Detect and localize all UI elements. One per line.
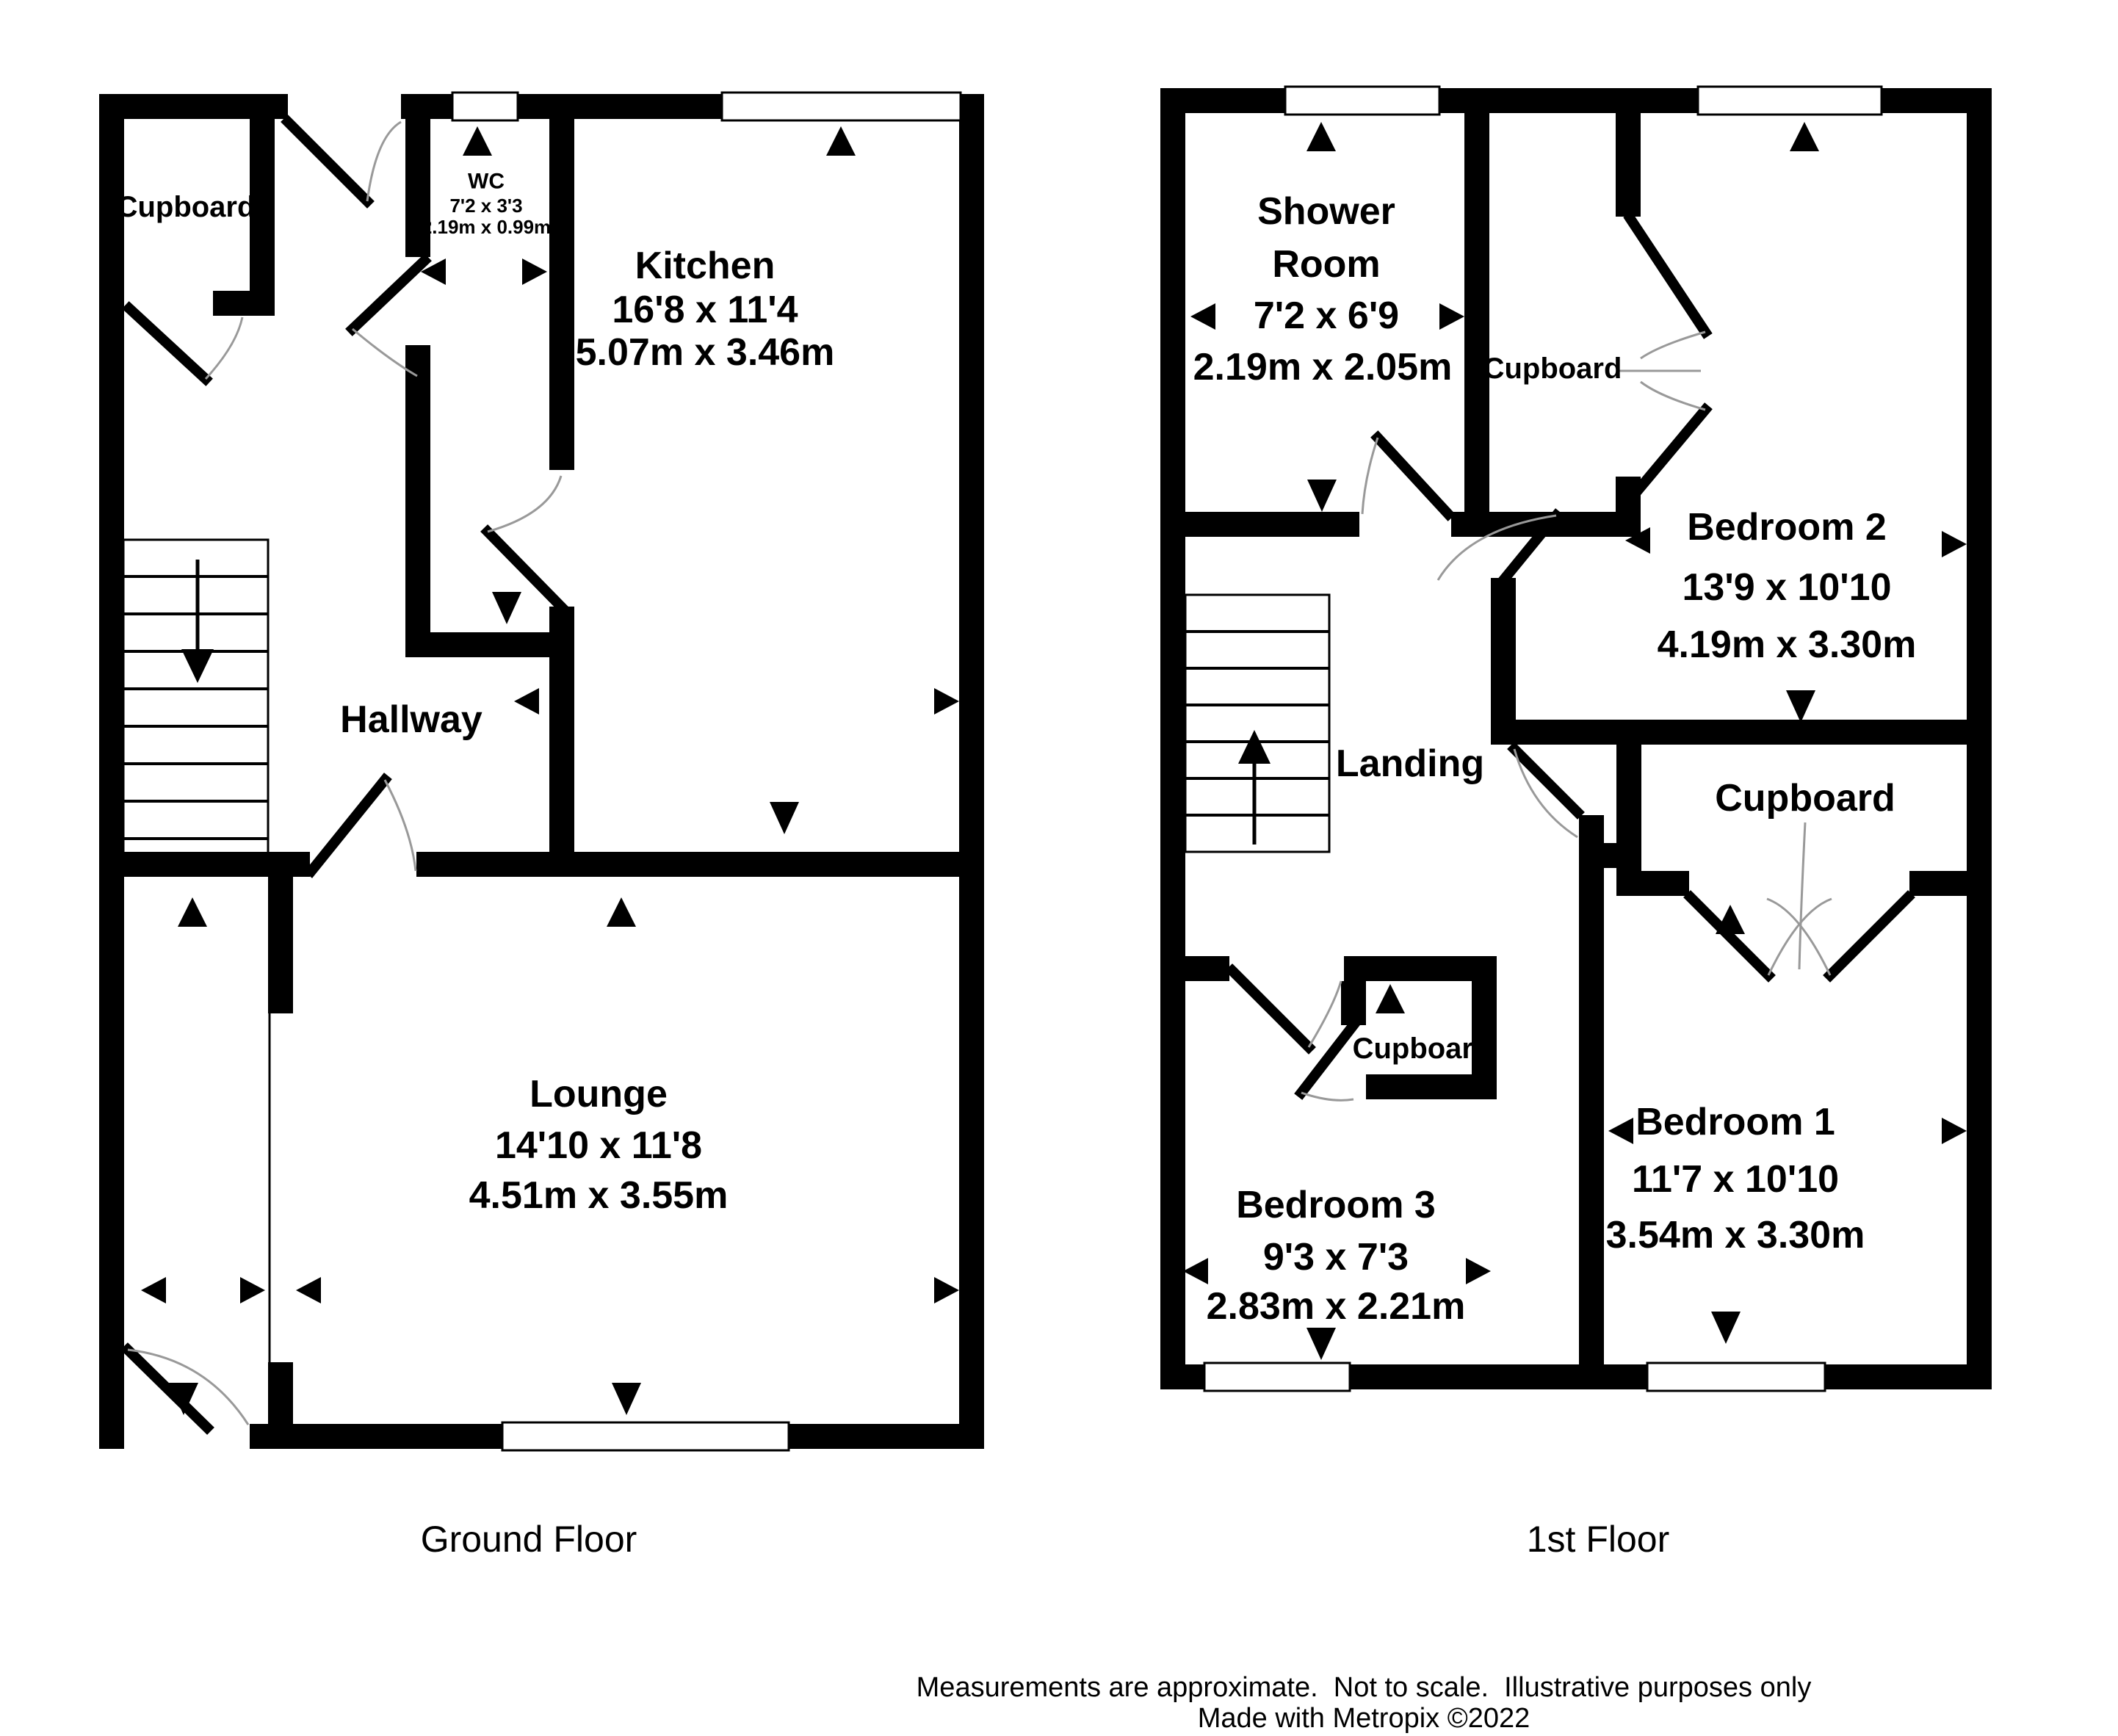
lounge-label: Lounge [529, 1073, 668, 1115]
dimension-arrow-down-icon [612, 1383, 641, 1415]
cupboard-label: Cupboard [117, 191, 256, 223]
bedroom3-imperial-dimensions: 9'3 x 7'3 [1263, 1236, 1409, 1279]
first-labels: Shower Room 7'2 x 6'9 2.19m x 2.05m Cupb… [1193, 190, 1917, 1328]
wall [1160, 956, 1229, 981]
door-arc [1309, 981, 1341, 1047]
wall [213, 291, 275, 316]
ground-doors [128, 122, 561, 1428]
first-floor-plan: Shower Room 7'2 x 6'9 2.19m x 2.05m Cupb… [1160, 87, 1992, 1391]
cupboard-small-label: Cupboard [1353, 1032, 1492, 1065]
dimension-arrow-down-icon [492, 592, 521, 624]
wall [1160, 512, 1359, 537]
door-leaf [1630, 219, 1705, 332]
door-leaf [1232, 971, 1309, 1047]
dimension-arrow-right-icon [1942, 1118, 1967, 1144]
bedroom1-metric-dimensions: 3.54m x 3.30m [1606, 1214, 1865, 1256]
lounge-imperial-dimensions: 14'10 x 11'8 [495, 1124, 702, 1167]
dimension-arrow-right-icon [1466, 1258, 1491, 1284]
wall [405, 345, 430, 632]
wall [1909, 871, 1992, 896]
window [1204, 1363, 1350, 1391]
cupboard-callout-line [1799, 822, 1805, 969]
dimension-arrow-right-icon [1439, 303, 1464, 330]
window [722, 93, 961, 120]
wall [549, 119, 574, 470]
wall [959, 94, 984, 1449]
door-arc [206, 317, 242, 379]
wall [268, 877, 293, 1013]
door-arc [1641, 332, 1705, 358]
disclaimer-text: Measurements are approximate. Not to sca… [917, 1672, 1812, 1703]
dimension-arrow-right-icon [240, 1277, 265, 1303]
wall [1491, 578, 1516, 745]
dimension-arrow-left-icon [514, 688, 539, 715]
captions: Ground Floor 1st Floor [421, 1519, 1670, 1560]
kitchen-label: Kitchen [635, 245, 776, 287]
lounge-metric-dimensions: 4.51m x 3.55m [469, 1174, 729, 1217]
first-floor-caption: 1st Floor [1527, 1519, 1670, 1560]
stairs-outline [1185, 595, 1329, 852]
door-arc [385, 780, 416, 871]
wall [1491, 720, 1992, 745]
wall [1160, 88, 1185, 1389]
floorplan-page: Cupboard WC 7'2 x 3'3 2.19m x 0.99m Kitc… [0, 0, 2118, 1736]
bedroom3-label: Bedroom 3 [1236, 1184, 1436, 1226]
wall [1616, 113, 1641, 217]
window [502, 1422, 789, 1450]
wall [1366, 1074, 1497, 1099]
wall [1451, 512, 1489, 537]
stairs-arrow-up-icon [1238, 730, 1271, 764]
wc-metric-dimensions: 2.19m x 0.99m [422, 216, 551, 238]
window [1285, 87, 1439, 115]
window [1647, 1363, 1825, 1391]
dimension-arrow-down-icon [770, 802, 799, 834]
dimension-arrow-up-icon [463, 126, 492, 156]
stairs-arrow-down-icon [181, 649, 214, 683]
credit-text: Made with Metropix ©2022 [1198, 1703, 1530, 1734]
wall [1579, 815, 1604, 1389]
door-leaf [311, 780, 385, 871]
dimension-arrow-down-icon [1711, 1312, 1741, 1344]
wall [1464, 113, 1489, 537]
dimension-arrow-right-icon [934, 688, 959, 715]
door-leaf [1630, 410, 1705, 499]
kitchen-imperial-dimensions: 16'8 x 11'4 [612, 289, 798, 331]
wc-label: WC [468, 170, 505, 194]
cupboard-top-label: Cupboard [1483, 352, 1622, 385]
bedroom2-label: Bedroom 2 [1687, 506, 1887, 549]
footer: Measurements are approximate. Not to sca… [917, 1672, 1812, 1734]
dimension-arrow-up-icon [1306, 122, 1336, 151]
dimension-arrow-left-icon [1183, 1258, 1208, 1284]
wall [1344, 956, 1497, 981]
ground-stairs [123, 540, 268, 874]
ground-floor-plan: Cupboard WC 7'2 x 3'3 2.19m x 0.99m Kitc… [99, 93, 984, 1450]
cupboard-right-label: Cupboard [1715, 777, 1895, 820]
dimension-arrow-down-icon [1786, 690, 1815, 723]
bedroom1-imperial-dimensions: 11'7 x 10'10 [1632, 1158, 1839, 1201]
dimension-arrow-down-icon [1307, 480, 1337, 512]
ground-interior-walls [123, 119, 984, 1424]
shower-room-label-line2: Room [1272, 243, 1380, 286]
dimension-arrow-up-icon [1790, 122, 1819, 151]
dimension-arrow-up-icon [178, 897, 207, 927]
landing-label: Landing [1336, 742, 1484, 785]
door-leaf [1514, 749, 1577, 812]
bedroom2-imperial-dimensions: 13'9 x 10'10 [1683, 566, 1892, 609]
door-leaf [353, 261, 424, 329]
floorplan-drawing: Cupboard WC 7'2 x 3'3 2.19m x 0.99m Kitc… [0, 0, 2118, 1736]
dimension-arrow-left-icon [141, 1277, 166, 1303]
dimension-arrow-up-icon [1376, 984, 1405, 1013]
bedroom1-label: Bedroom 1 [1636, 1101, 1835, 1143]
dimension-arrow-right-icon [522, 258, 547, 285]
door-arc [1362, 438, 1378, 514]
hallway-label: Hallway [340, 698, 482, 741]
bedroom2-metric-dimensions: 4.19m x 3.30m [1658, 623, 1917, 666]
dimension-arrow-right-icon [934, 1277, 959, 1303]
door-leaf [129, 308, 206, 379]
bedroom3-metric-dimensions: 2.83m x 2.21m [1207, 1285, 1466, 1328]
shower-room-label-line1: Shower [1257, 190, 1395, 233]
wall [549, 607, 574, 877]
kitchen-metric-dimensions: 5.07m x 3.46m [576, 331, 835, 374]
dimension-arrow-left-icon [1608, 1118, 1633, 1144]
door-leaf [1830, 897, 1908, 975]
ground-labels: Cupboard WC 7'2 x 3'3 2.19m x 0.99m Kitc… [117, 170, 835, 1218]
wall [1489, 512, 1641, 537]
door-arc [488, 476, 561, 532]
dimension-arrow-up-icon [607, 897, 636, 927]
dimension-arrow-up-icon [1716, 905, 1745, 934]
dimension-arrow-left-icon [1190, 303, 1215, 330]
door-arc [1641, 382, 1705, 410]
wall [1616, 871, 1689, 896]
wall [99, 94, 288, 119]
ground-floor-caption: Ground Floor [421, 1519, 637, 1560]
dimension-arrow-down-icon [1306, 1328, 1336, 1360]
wall [1341, 981, 1366, 1025]
wc-imperial-dimensions: 7'2 x 3'3 [449, 195, 522, 217]
dimension-arrow-up-icon [826, 126, 856, 156]
door-arc [1301, 1093, 1353, 1100]
dimension-arrow-left-icon [296, 1277, 321, 1303]
shower-room-imperial-dimensions: 7'2 x 6'9 [1254, 294, 1399, 337]
shower-room-metric-dimensions: 2.19m x 2.05m [1193, 346, 1453, 388]
wall [416, 852, 984, 877]
window [1698, 87, 1882, 115]
wall [268, 1362, 293, 1424]
door-leaf [288, 122, 367, 201]
first-stairs [1185, 595, 1329, 852]
door-leaf [1378, 438, 1448, 514]
door-arc [367, 122, 401, 201]
wall [99, 94, 124, 1449]
window [452, 93, 518, 120]
wall [405, 632, 574, 657]
dimension-arrow-right-icon [1942, 531, 1967, 557]
door-leaf [1301, 1025, 1353, 1093]
